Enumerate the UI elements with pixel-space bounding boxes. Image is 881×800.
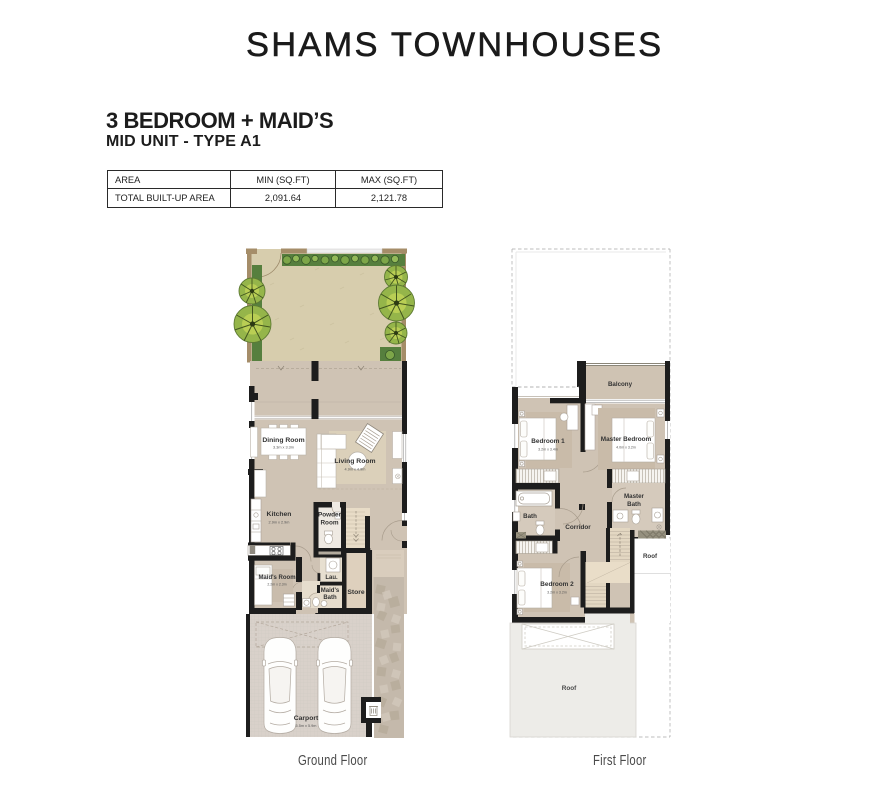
svg-text:2.2m x 2.3m: 2.2m x 2.3m <box>267 583 286 587</box>
svg-text:Bath: Bath <box>523 513 537 520</box>
svg-text:3.2m x 3.4m: 3.2m x 3.4m <box>538 448 558 452</box>
svg-text:Bedroom 2: Bedroom 2 <box>540 581 574 588</box>
svg-text:Master: Master <box>624 493 645 500</box>
svg-text:4.0m x 3.2m: 4.0m x 3.2m <box>616 446 636 450</box>
svg-text:2.9m x 2.9m: 2.9m x 2.9m <box>269 521 290 525</box>
svg-text:Balcony: Balcony <box>608 381 633 388</box>
svg-text:4.9m x 4.9m: 4.9m x 4.9m <box>345 468 366 472</box>
svg-text:Living Room: Living Room <box>334 458 375 465</box>
svg-text:Kitchen: Kitchen <box>267 511 292 518</box>
svg-text:Lau.: Lau. <box>325 575 338 581</box>
svg-text:Roof: Roof <box>562 685 577 692</box>
svg-text:Powder: Powder <box>318 512 342 519</box>
svg-text:5.5m x 5.9m: 5.5m x 5.9m <box>296 724 317 728</box>
svg-text:3.2m x 3.2m: 3.2m x 3.2m <box>547 591 567 595</box>
svg-text:Bath: Bath <box>627 501 641 508</box>
svg-text:Master Bedroom: Master Bedroom <box>601 436 652 443</box>
svg-text:3.3m x 3.3m: 3.3m x 3.3m <box>273 446 294 450</box>
svg-text:Room: Room <box>320 520 338 527</box>
svg-text:Dining Room: Dining Room <box>262 437 304 444</box>
svg-text:Carport: Carport <box>294 715 319 722</box>
svg-text:Maid's: Maid's <box>321 588 340 594</box>
svg-text:Bath: Bath <box>323 595 337 601</box>
svg-text:Roof: Roof <box>643 553 658 560</box>
svg-text:Bedroom 1: Bedroom 1 <box>531 438 565 445</box>
svg-text:Corridor: Corridor <box>565 524 591 531</box>
svg-text:Maid's Room: Maid's Room <box>258 575 295 581</box>
svg-text:Store: Store <box>347 589 365 596</box>
